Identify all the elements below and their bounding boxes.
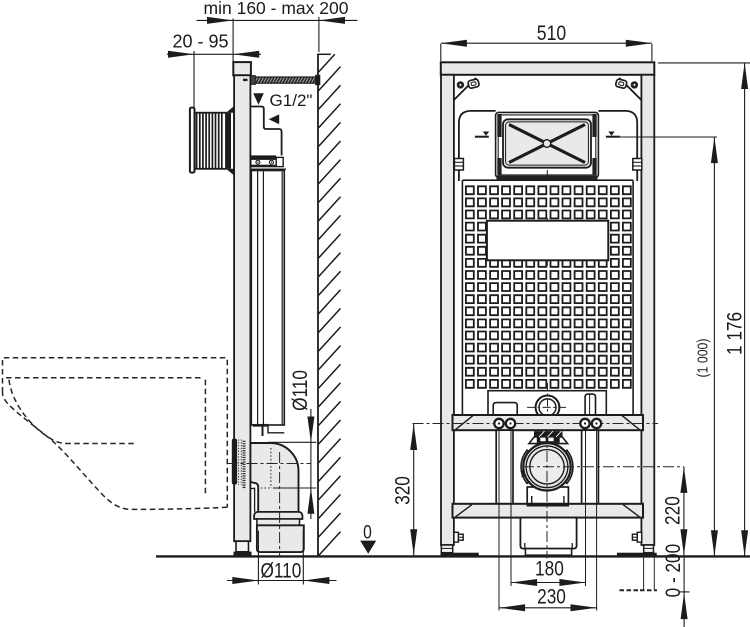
svg-text:min 160 - max 200: min 160 - max 200 (204, 0, 349, 18)
svg-text:0 - 200: 0 - 200 (662, 544, 685, 598)
svg-text:230: 230 (537, 586, 566, 609)
svg-text:(1 000): (1 000) (694, 339, 710, 378)
svg-text:20 - 95: 20 - 95 (172, 32, 228, 52)
svg-text:0: 0 (363, 521, 372, 543)
svg-text:510: 510 (537, 21, 566, 45)
svg-text:180: 180 (535, 558, 564, 581)
svg-text:Ø110: Ø110 (260, 560, 301, 583)
svg-text:1 176: 1 176 (724, 312, 747, 355)
svg-text:Ø110: Ø110 (289, 370, 312, 411)
svg-text:220: 220 (662, 496, 685, 525)
svg-text:320: 320 (392, 476, 415, 505)
svg-text:G1/2": G1/2" (270, 91, 313, 110)
